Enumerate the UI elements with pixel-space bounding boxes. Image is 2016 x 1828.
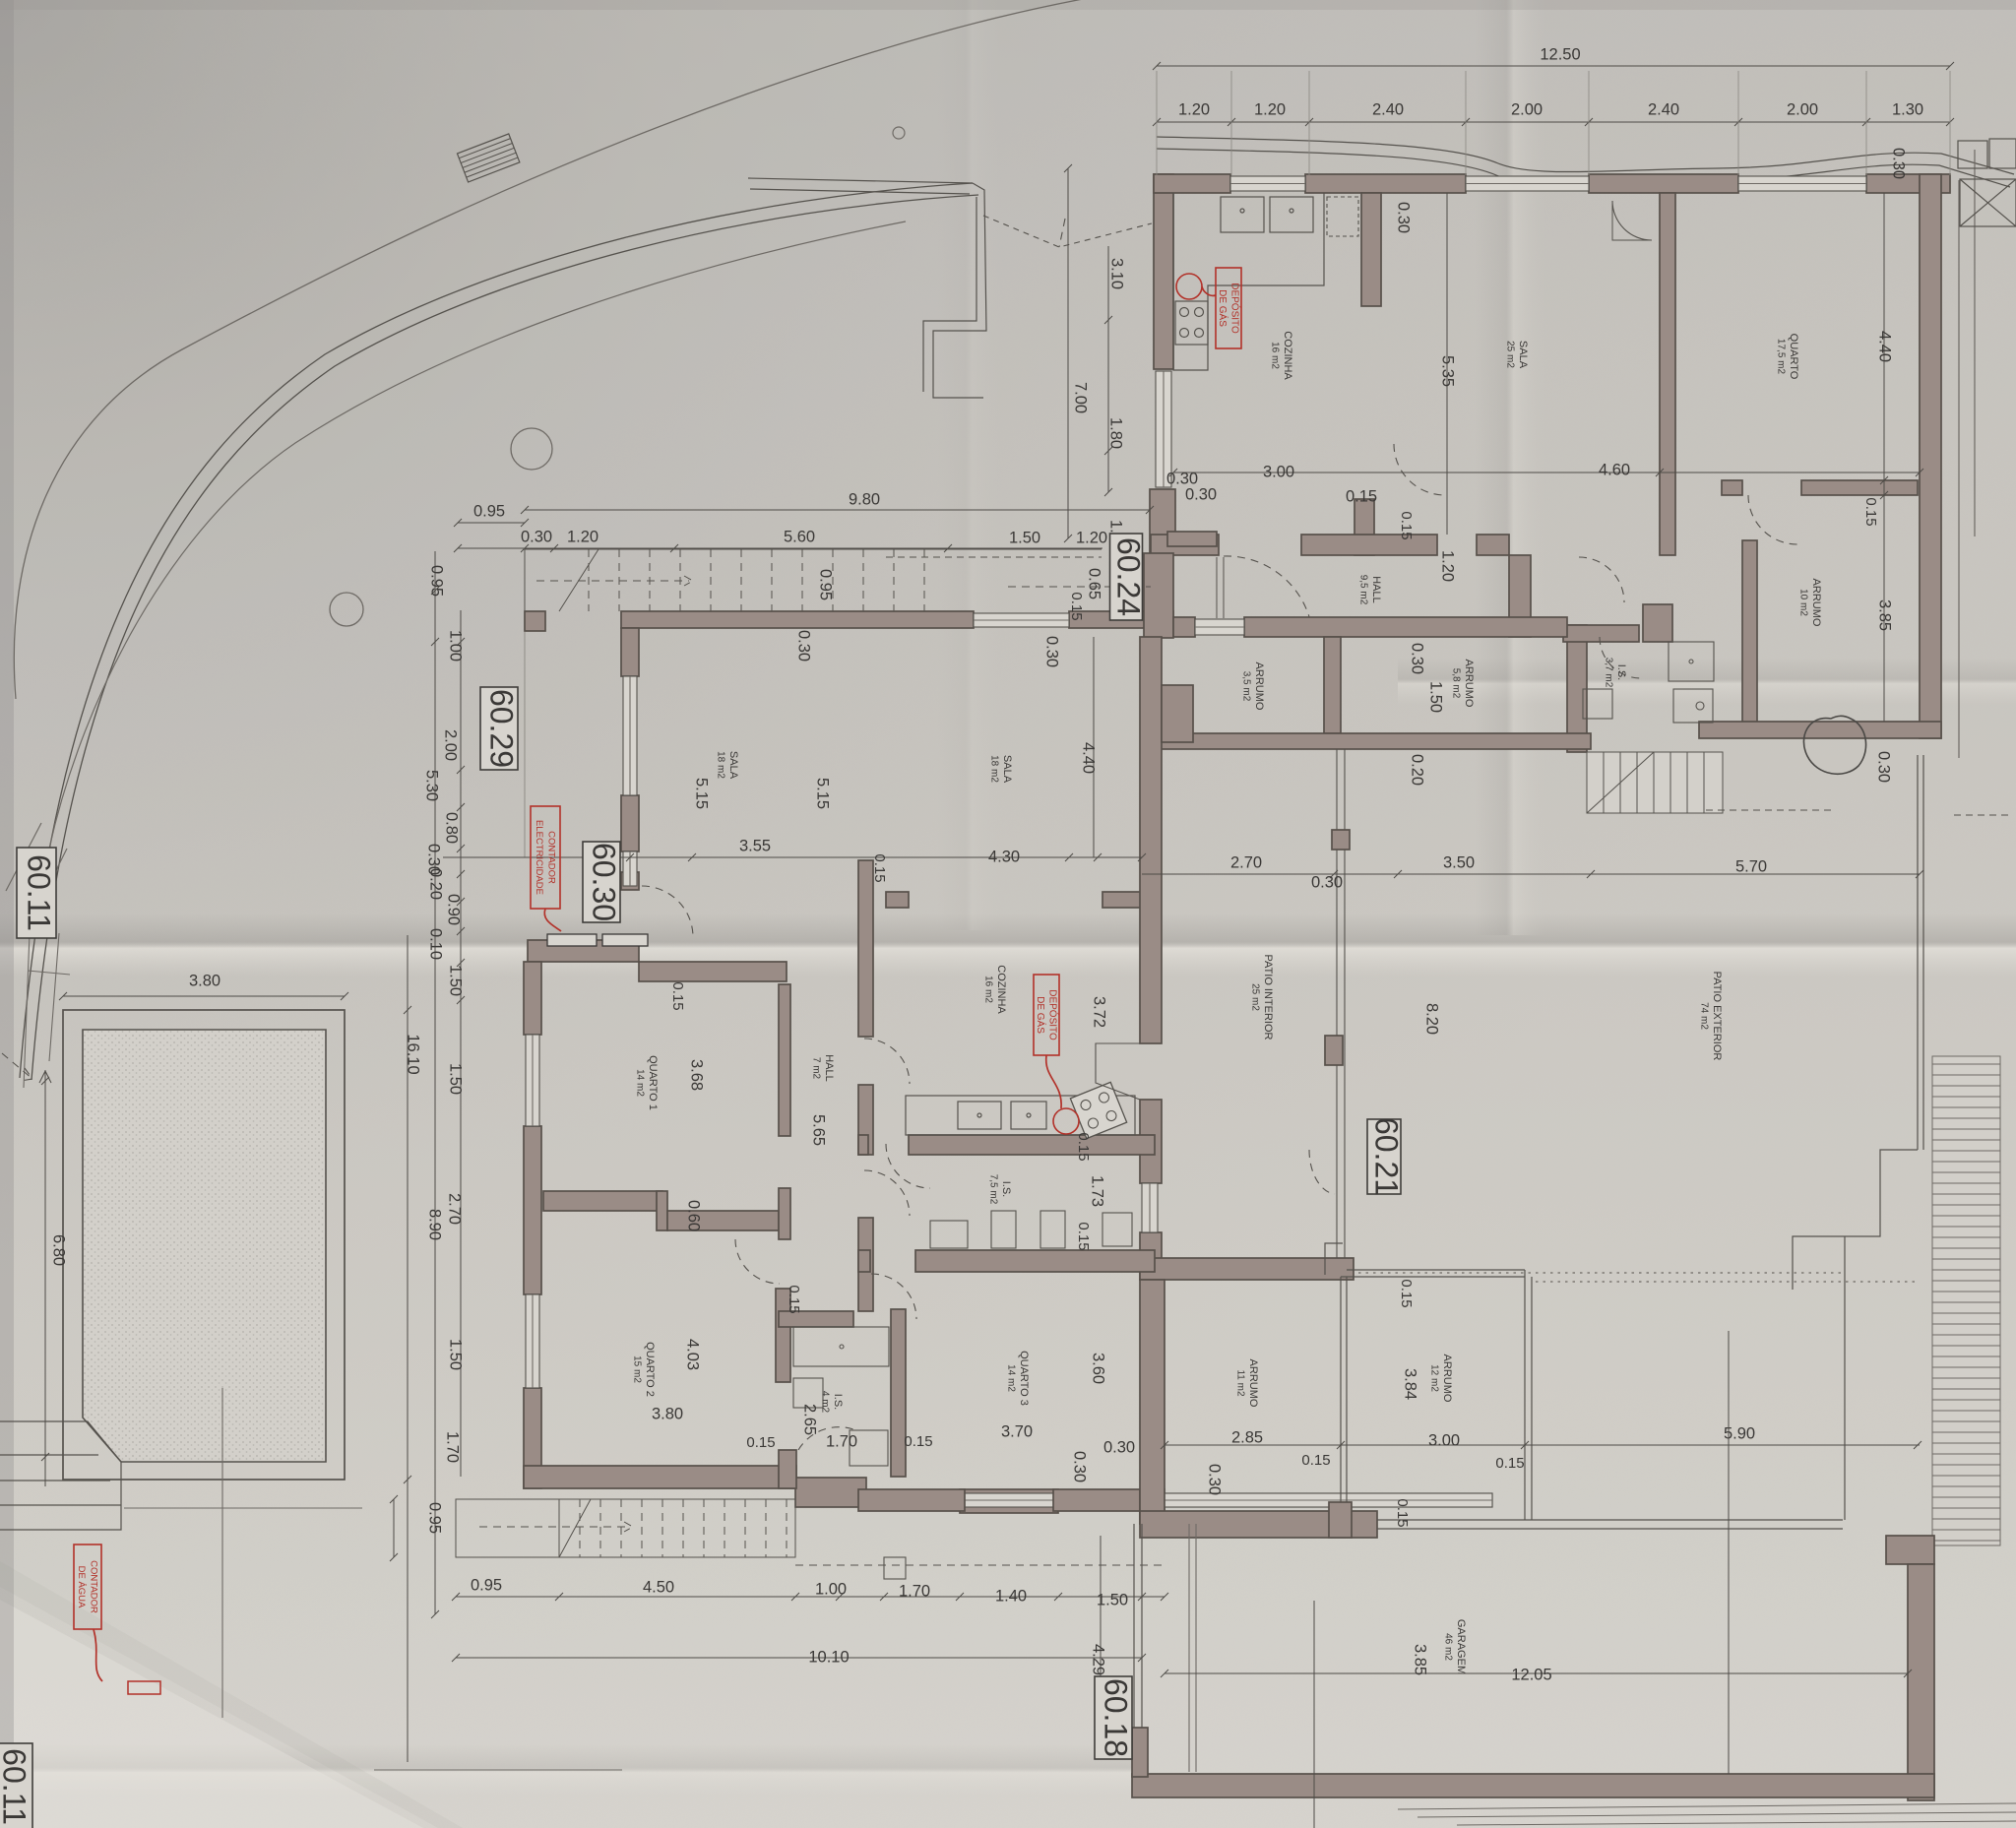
svg-text:9.80: 9.80 xyxy=(849,490,880,508)
svg-text:10.10: 10.10 xyxy=(808,1648,849,1666)
svg-text:HALL: HALL xyxy=(1370,576,1382,603)
svg-text:0.65: 0.65 xyxy=(1086,568,1103,599)
svg-text:1.20: 1.20 xyxy=(1076,529,1107,546)
svg-text:5.30: 5.30 xyxy=(423,770,441,801)
svg-text:0.30: 0.30 xyxy=(1103,1438,1135,1456)
svg-text:5.60: 5.60 xyxy=(784,528,815,545)
svg-text:25 m2: 25 m2 xyxy=(1504,341,1515,368)
svg-text:17,5 m2: 17,5 m2 xyxy=(1775,339,1786,375)
svg-text:0.15: 0.15 xyxy=(669,981,686,1010)
svg-text:4.40: 4.40 xyxy=(1080,742,1098,774)
svg-text:4.30: 4.30 xyxy=(988,848,1020,865)
svg-text:3.70: 3.70 xyxy=(1001,1422,1033,1440)
svg-text:0.15: 0.15 xyxy=(1075,1132,1092,1161)
svg-text:1.20: 1.20 xyxy=(1439,550,1457,582)
svg-text:0.95: 0.95 xyxy=(473,502,505,520)
svg-text:0.20: 0.20 xyxy=(1409,754,1426,786)
svg-text:1.20: 1.20 xyxy=(1178,100,1210,118)
svg-text:0.15: 0.15 xyxy=(1346,487,1377,505)
svg-text:5.65: 5.65 xyxy=(810,1114,828,1146)
svg-text:0.15: 0.15 xyxy=(786,1285,802,1313)
svg-text:0.30: 0.30 xyxy=(1206,1464,1224,1495)
svg-text:0.30: 0.30 xyxy=(1409,643,1426,674)
svg-text:3.85: 3.85 xyxy=(1876,599,1894,631)
svg-text:4.50: 4.50 xyxy=(643,1578,674,1596)
svg-text:1.73: 1.73 xyxy=(1089,1175,1106,1207)
svg-text:1.50: 1.50 xyxy=(447,965,465,996)
svg-text:7,5 m2: 7,5 m2 xyxy=(987,1174,998,1205)
svg-text:I.S.: I.S. xyxy=(1000,1181,1012,1198)
svg-text:8.20: 8.20 xyxy=(1423,1003,1441,1035)
svg-text:2.85: 2.85 xyxy=(1231,1428,1263,1446)
svg-text:QUARTO 1: QUARTO 1 xyxy=(647,1055,659,1110)
svg-text:1.50: 1.50 xyxy=(1427,681,1445,713)
svg-text:0.60: 0.60 xyxy=(685,1200,703,1231)
svg-text:5.15: 5.15 xyxy=(814,778,832,809)
svg-text:1.80: 1.80 xyxy=(1107,417,1125,449)
svg-text:60.11: 60.11 xyxy=(22,854,57,931)
svg-text:5,8 m2: 5,8 m2 xyxy=(1450,668,1461,699)
svg-text:1.50: 1.50 xyxy=(447,1063,465,1095)
svg-text:0.10: 0.10 xyxy=(427,928,445,960)
svg-text:16 m2: 16 m2 xyxy=(1269,342,1280,369)
svg-text:CONTADOR: CONTADOR xyxy=(89,1560,99,1613)
svg-text:3,5 m2: 3,5 m2 xyxy=(1240,671,1251,702)
svg-text:4 m2: 4 m2 xyxy=(819,1391,830,1414)
svg-text:SALA: SALA xyxy=(1001,755,1013,784)
svg-text:3.72: 3.72 xyxy=(1091,996,1108,1028)
svg-text:3,7 m2: 3,7 m2 xyxy=(1603,658,1613,688)
svg-text:0.95: 0.95 xyxy=(471,1576,502,1594)
svg-text:14 m2: 14 m2 xyxy=(1005,1364,1016,1392)
svg-text:0.15: 0.15 xyxy=(746,1434,775,1451)
svg-text:12.05: 12.05 xyxy=(1511,1666,1551,1683)
svg-text:0.15: 0.15 xyxy=(1862,497,1879,526)
svg-text:3.68: 3.68 xyxy=(688,1059,706,1091)
svg-text:CONTADOR: CONTADOR xyxy=(546,831,557,884)
svg-text:DE ÁGUA: DE ÁGUA xyxy=(76,1566,87,1608)
svg-text:0.30: 0.30 xyxy=(1185,485,1217,503)
svg-text:18 m2: 18 m2 xyxy=(988,755,999,783)
svg-text:0.30: 0.30 xyxy=(521,528,552,545)
svg-text:1.00: 1.00 xyxy=(815,1580,847,1598)
svg-text:3.80: 3.80 xyxy=(652,1405,683,1422)
svg-text:0.15: 0.15 xyxy=(1068,592,1085,620)
svg-text:0.90: 0.90 xyxy=(445,894,463,925)
svg-text:0.15: 0.15 xyxy=(1398,511,1415,539)
svg-text:8.90: 8.90 xyxy=(426,1209,444,1240)
svg-text:5.15: 5.15 xyxy=(693,778,711,809)
svg-text:16.10: 16.10 xyxy=(405,1034,422,1074)
svg-text:0.30: 0.30 xyxy=(1395,202,1413,233)
svg-text:0.95: 0.95 xyxy=(817,569,835,600)
svg-text:4.40: 4.40 xyxy=(1876,331,1894,362)
svg-text:ELECTRICIDADE: ELECTRICIDADE xyxy=(534,820,544,895)
svg-text:COZINHA: COZINHA xyxy=(1282,331,1293,380)
svg-text:2.00: 2.00 xyxy=(1787,100,1818,118)
svg-text:DEPÓSITO: DEPÓSITO xyxy=(1229,283,1242,334)
svg-text:25 m2: 25 m2 xyxy=(1249,983,1260,1011)
svg-text:0.15: 0.15 xyxy=(1075,1222,1092,1250)
svg-text:6.80: 6.80 xyxy=(50,1234,68,1266)
svg-text:60.24: 60.24 xyxy=(1111,537,1147,616)
svg-text:60.18: 60.18 xyxy=(1099,1678,1134,1757)
svg-text:0.30: 0.30 xyxy=(1875,751,1893,783)
svg-text:60.30: 60.30 xyxy=(587,843,622,921)
svg-text:1.50: 1.50 xyxy=(1009,529,1040,546)
svg-text:HALL: HALL xyxy=(823,1054,835,1082)
svg-text:11 m2: 11 m2 xyxy=(1234,1369,1245,1396)
svg-text:ARRUMO: ARRUMO xyxy=(1463,660,1475,708)
svg-text:5.70: 5.70 xyxy=(1735,857,1767,875)
svg-text:2.40: 2.40 xyxy=(1372,100,1404,118)
svg-text:QUARTO: QUARTO xyxy=(1788,334,1799,380)
svg-text:3.55: 3.55 xyxy=(739,837,771,854)
svg-text:0.30: 0.30 xyxy=(795,630,813,662)
svg-text:I.S.: I.S. xyxy=(1615,664,1627,681)
svg-text:1.40: 1.40 xyxy=(995,1587,1027,1605)
svg-text:PATIO INTERIOR: PATIO INTERIOR xyxy=(1262,955,1274,1040)
svg-text:9,5 m2: 9,5 m2 xyxy=(1357,575,1368,605)
svg-text:PATIO EXTERIOR: PATIO EXTERIOR xyxy=(1711,972,1723,1061)
svg-text:15 m2: 15 m2 xyxy=(631,1355,642,1383)
svg-text:SALA: SALA xyxy=(1517,341,1529,369)
svg-text:0.30: 0.30 xyxy=(1071,1451,1089,1482)
svg-text:DEPÓSITO: DEPÓSITO xyxy=(1047,989,1060,1040)
svg-text:1.00: 1.00 xyxy=(447,630,465,662)
svg-text:4.03: 4.03 xyxy=(684,1339,702,1370)
svg-text:2.70: 2.70 xyxy=(1230,853,1262,871)
svg-text:0.15: 0.15 xyxy=(871,853,888,882)
svg-text:60.29: 60.29 xyxy=(484,689,520,768)
svg-text:DE GÁS: DE GÁS xyxy=(1035,996,1047,1034)
svg-text:1.70: 1.70 xyxy=(826,1432,857,1450)
svg-text:5.35: 5.35 xyxy=(1439,355,1457,387)
svg-text:3.00: 3.00 xyxy=(1263,463,1294,480)
svg-text:12 m2: 12 m2 xyxy=(1428,1364,1439,1392)
svg-text:4.60: 4.60 xyxy=(1599,461,1630,478)
svg-text:1.20: 1.20 xyxy=(567,528,598,545)
svg-text:2.40: 2.40 xyxy=(1648,100,1679,118)
svg-text:COZINHA: COZINHA xyxy=(995,965,1007,1014)
svg-text:2.65: 2.65 xyxy=(801,1404,819,1435)
svg-text:I.S.: I.S. xyxy=(832,1394,844,1411)
svg-text:3.10: 3.10 xyxy=(1108,258,1126,289)
svg-text:1.70: 1.70 xyxy=(899,1582,930,1600)
svg-text:3.00: 3.00 xyxy=(1428,1431,1460,1449)
svg-text:3.85: 3.85 xyxy=(1412,1644,1429,1675)
svg-text:18 m2: 18 m2 xyxy=(715,751,725,779)
svg-text:SALA: SALA xyxy=(727,751,739,780)
svg-text:1.20: 1.20 xyxy=(1254,100,1286,118)
svg-text:14 m2: 14 m2 xyxy=(634,1069,645,1097)
svg-text:3.80: 3.80 xyxy=(189,972,220,989)
svg-text:ARRUMO: ARRUMO xyxy=(1441,1355,1453,1403)
svg-text:4.29: 4.29 xyxy=(1090,1644,1107,1675)
svg-text:0.15: 0.15 xyxy=(1301,1452,1330,1469)
svg-text:0.15: 0.15 xyxy=(904,1433,932,1450)
svg-text:0.20: 0.20 xyxy=(427,868,445,900)
svg-text:0.95: 0.95 xyxy=(428,565,446,597)
svg-text:12.50: 12.50 xyxy=(1540,45,1580,63)
svg-text:3.60: 3.60 xyxy=(1090,1353,1107,1384)
svg-text:ARRUMO: ARRUMO xyxy=(1253,662,1265,711)
svg-text:60.11: 60.11 xyxy=(0,1748,32,1825)
svg-text:1.50: 1.50 xyxy=(447,1339,465,1370)
svg-text:2.00: 2.00 xyxy=(442,729,460,761)
svg-text:0.15: 0.15 xyxy=(1394,1498,1411,1527)
svg-text:3.84: 3.84 xyxy=(1402,1368,1419,1400)
svg-text:GARAGEM: GARAGEM xyxy=(1455,1619,1467,1674)
svg-text:ARRUMO: ARRUMO xyxy=(1247,1359,1259,1408)
svg-text:0.80: 0.80 xyxy=(443,812,461,844)
svg-text:0.15: 0.15 xyxy=(1398,1279,1415,1307)
svg-text:10 m2: 10 m2 xyxy=(1797,589,1808,616)
svg-text:0.30: 0.30 xyxy=(1311,873,1343,891)
svg-text:QUARTO 3: QUARTO 3 xyxy=(1018,1351,1030,1406)
svg-text:2.00: 2.00 xyxy=(1511,100,1543,118)
svg-text:DE GÁS: DE GÁS xyxy=(1217,289,1229,327)
svg-text:QUARTO 2: QUARTO 2 xyxy=(644,1342,656,1397)
svg-text:2.70: 2.70 xyxy=(446,1193,464,1225)
svg-text:3.50: 3.50 xyxy=(1443,853,1475,871)
svg-text:74 m2: 74 m2 xyxy=(1698,1002,1709,1030)
svg-text:7 m2: 7 m2 xyxy=(810,1057,821,1080)
svg-text:1.70: 1.70 xyxy=(444,1431,462,1463)
svg-text:1.50: 1.50 xyxy=(1097,1591,1128,1608)
svg-text:7.00: 7.00 xyxy=(1072,382,1090,413)
svg-text:1.30: 1.30 xyxy=(1892,100,1923,118)
svg-text:46 m2: 46 m2 xyxy=(1442,1633,1453,1661)
svg-text:0.15: 0.15 xyxy=(1495,1455,1524,1472)
svg-text:16 m2: 16 m2 xyxy=(982,976,993,1003)
svg-text:60.21: 60.21 xyxy=(1369,1117,1405,1196)
svg-text:0.95: 0.95 xyxy=(426,1502,444,1534)
svg-text:0.30: 0.30 xyxy=(1890,148,1908,179)
svg-text:ARRUMO: ARRUMO xyxy=(1810,579,1822,627)
svg-text:0.30: 0.30 xyxy=(1043,636,1061,667)
